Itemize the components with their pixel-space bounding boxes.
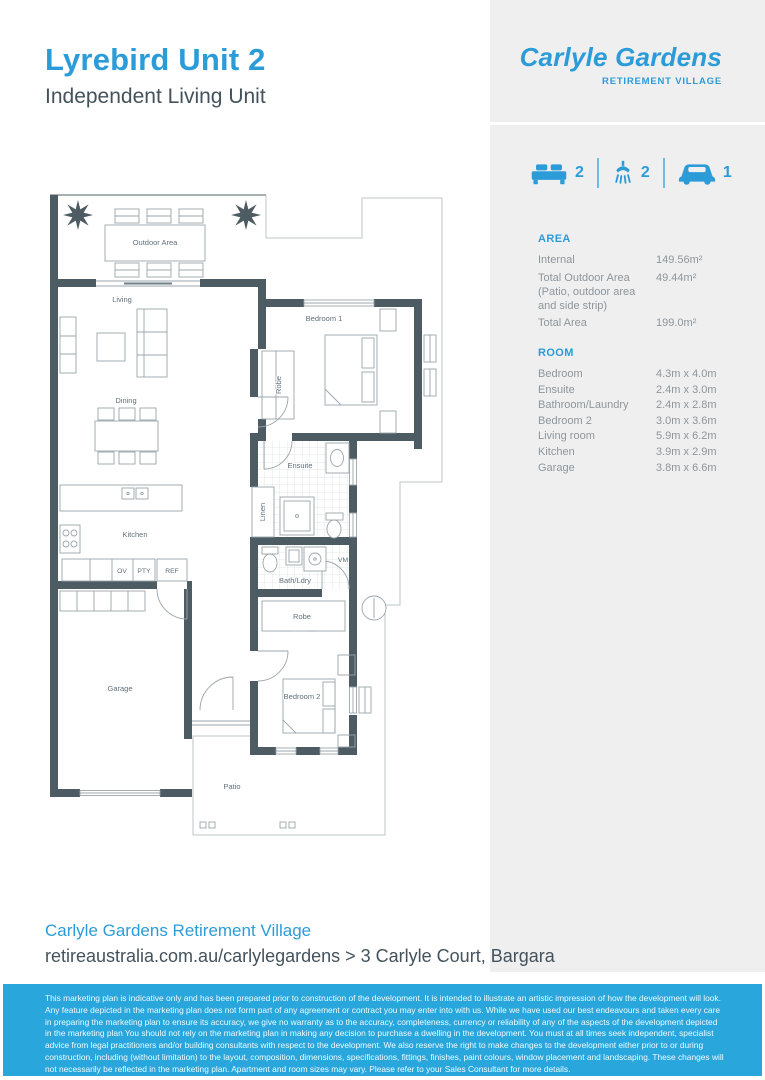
bedroom1-furniture xyxy=(325,309,396,433)
living-furniture xyxy=(60,309,167,377)
label-patio: Patio xyxy=(223,782,240,791)
cars-count: 1 xyxy=(723,164,732,182)
area-row: Total Outdoor Area (Patio, outdoor area … xyxy=(538,271,723,313)
stat-divider xyxy=(597,158,599,188)
page-subtitle: Independent Living Unit xyxy=(45,85,266,109)
plant-icon xyxy=(57,194,99,236)
label-washing-machine: VM xyxy=(338,557,349,564)
sidebar: Carlyle Gardens RETIREMENT VILLAGE 2 xyxy=(490,0,765,972)
label-fridge: REF xyxy=(165,568,179,575)
car-icon xyxy=(678,160,716,186)
brand-name: Carlyle Gardens xyxy=(490,42,722,73)
area-row: Internal 149.56m² xyxy=(538,253,723,267)
room-label: Living room xyxy=(538,429,656,443)
header: Lyrebird Unit 2 Independent Living Unit xyxy=(45,42,266,109)
label-bedroom-1: Bedroom 1 xyxy=(306,314,343,323)
label-outdoor-area: Outdoor Area xyxy=(133,238,178,247)
room-label: Kitchen xyxy=(538,445,656,459)
room-row: Kitchen 3.9m x 2.9m xyxy=(538,445,723,459)
label-bedroom-2: Bedroom 2 xyxy=(284,692,321,701)
label-living: Living xyxy=(112,295,132,304)
room-label: Bathroom/Laundry xyxy=(538,398,656,412)
room-value: 4.3m x 4.0m xyxy=(656,367,723,381)
disclaimer-text: This marketing plan is indicative only a… xyxy=(45,993,724,1075)
room-label: Bedroom 2 xyxy=(538,414,656,428)
disclaimer-box: This marketing plan is indicative only a… xyxy=(3,984,762,1076)
kitchen-fixtures xyxy=(60,485,187,611)
room-heading: ROOM xyxy=(538,346,723,360)
room-value: 3.9m x 2.9m xyxy=(656,445,723,459)
footer: Carlyle Gardens Retirement Village retir… xyxy=(45,921,555,967)
label-garage: Garage xyxy=(107,684,132,693)
area-value: 199.0m² xyxy=(656,316,723,330)
label-kitchen: Kitchen xyxy=(122,530,147,539)
brand-tagline: RETIREMENT VILLAGE xyxy=(490,76,722,87)
label-robe-2: Robe xyxy=(293,612,311,621)
stats-row: 2 2 xyxy=(530,158,732,188)
label-dining: Dining xyxy=(115,396,136,405)
room-value: 5.9m x 6.2m xyxy=(656,429,723,443)
area-label: Internal xyxy=(538,253,656,267)
label-linen: Linen xyxy=(258,503,267,521)
room-label: Garage xyxy=(538,461,656,475)
label-ensuite: Ensuite xyxy=(287,461,312,470)
bathrooms-count: 2 xyxy=(641,164,650,182)
room-section: ROOM Bedroom 4.3m x 4.0m Ensuite 2.4m x … xyxy=(538,346,723,476)
room-value: 3.0m x 3.6m xyxy=(656,414,723,428)
stat-divider xyxy=(663,158,665,188)
dining-table xyxy=(95,408,158,464)
area-row: Total Area 199.0m² xyxy=(538,316,723,330)
room-row: Bedroom 2 3.0m x 3.6m xyxy=(538,414,723,428)
area-value: 49.44m² xyxy=(656,271,723,313)
label-pantry: PTY xyxy=(137,568,151,575)
room-row: Garage 3.8m x 6.6m xyxy=(538,461,723,475)
bedrooms-stat: 2 xyxy=(530,160,584,186)
brand-logo: Carlyle Gardens RETIREMENT VILLAGE xyxy=(490,0,765,125)
footer-org: Carlyle Gardens Retirement Village xyxy=(45,921,555,941)
label-oven: OV xyxy=(117,568,127,575)
water-meter-icon xyxy=(362,596,386,620)
cars-stat: 1 xyxy=(678,160,732,186)
room-value: 3.8m x 6.6m xyxy=(656,461,723,475)
sliding-door xyxy=(96,281,200,286)
marketing-plan-page: Lyrebird Unit 2 Independent Living Unit … xyxy=(0,0,765,1080)
bed-icon xyxy=(530,160,568,186)
label-bath-laundry: Bath/Ldry xyxy=(279,576,311,585)
area-label: Total Outdoor Area (Patio, outdoor area … xyxy=(538,271,656,313)
area-heading: AREA xyxy=(538,232,723,246)
garage-door xyxy=(80,791,160,796)
room-value: 2.4m x 2.8m xyxy=(656,398,723,412)
bedrooms-count: 2 xyxy=(575,164,584,182)
patio-posts xyxy=(200,822,295,828)
area-label: Total Area xyxy=(538,316,656,330)
entry-step xyxy=(192,721,250,725)
label-robe-1: Robe xyxy=(274,376,283,394)
floor-plan: Outdoor Area Living Dining Kitchen OV PT… xyxy=(40,185,475,850)
shower-icon xyxy=(612,160,634,187)
footer-address: retireaustralia.com.au/carlylegardens > … xyxy=(45,946,555,967)
area-section: AREA Internal 149.56m² Total Outdoor Are… xyxy=(538,232,723,334)
plant-icon xyxy=(225,194,267,236)
room-row: Bathroom/Laundry 2.4m x 2.8m xyxy=(538,398,723,412)
area-value: 149.56m² xyxy=(656,253,723,267)
bathrooms-stat: 2 xyxy=(612,160,650,187)
room-label: Ensuite xyxy=(538,383,656,397)
page-title: Lyrebird Unit 2 xyxy=(45,42,266,78)
room-row: Ensuite 2.4m x 3.0m xyxy=(538,383,723,397)
room-label: Bedroom xyxy=(538,367,656,381)
room-value: 2.4m x 3.0m xyxy=(656,383,723,397)
room-row: Bedroom 4.3m x 4.0m xyxy=(538,367,723,381)
room-row: Living room 5.9m x 6.2m xyxy=(538,429,723,443)
bedroom2-furniture xyxy=(283,655,355,747)
